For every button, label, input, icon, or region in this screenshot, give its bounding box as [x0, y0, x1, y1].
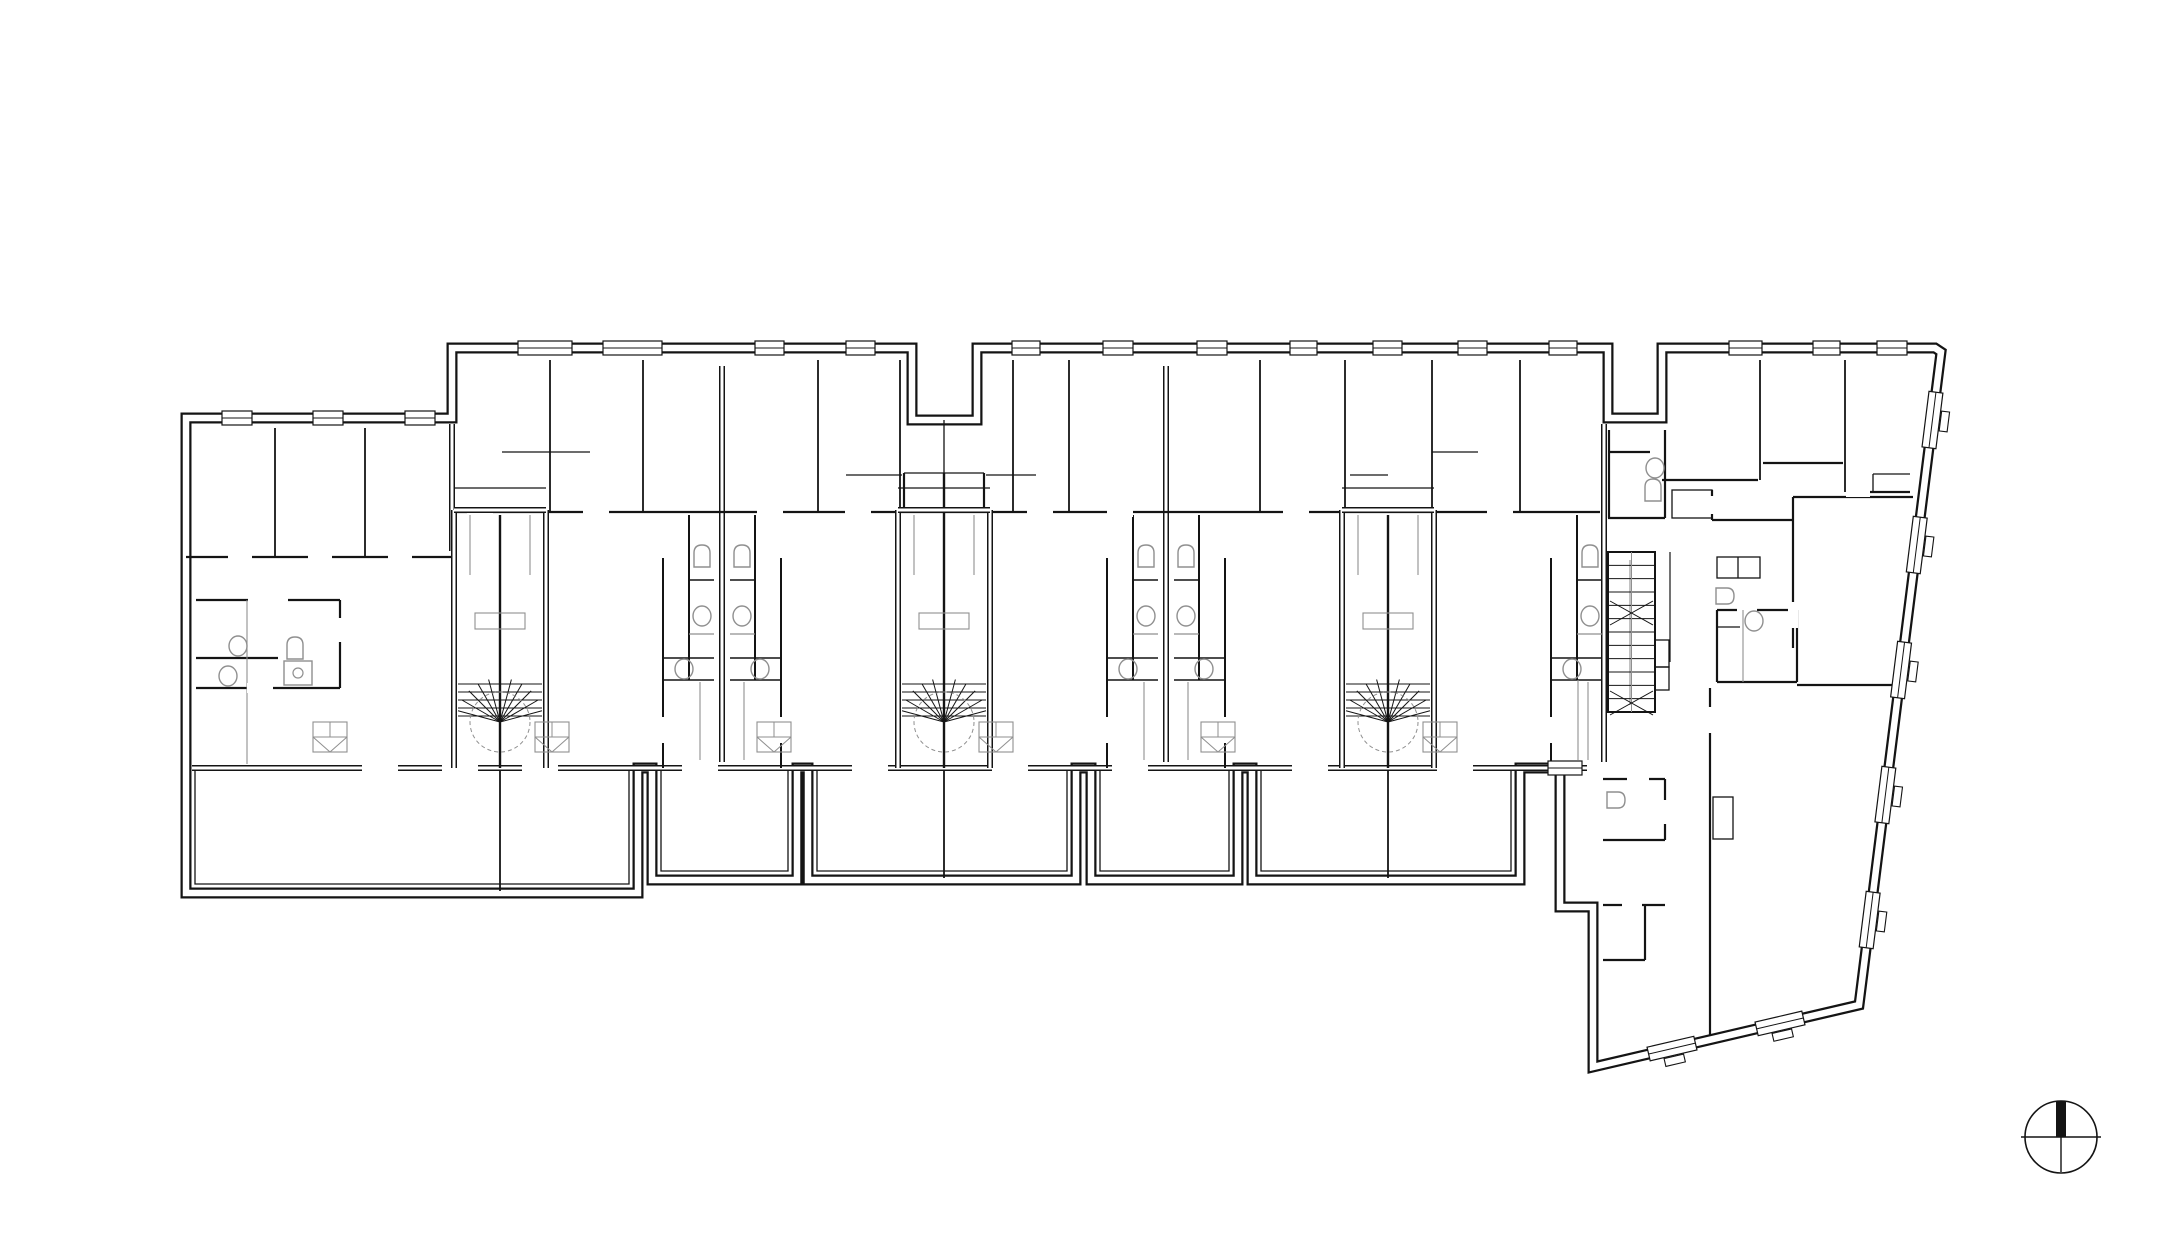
bath-clusters [663, 515, 1602, 768]
windows [222, 341, 1952, 1070]
party-walls [500, 473, 1388, 768]
floor-plan-drawing [0, 0, 2182, 1260]
floor-plan-canvas [0, 0, 2182, 1260]
north-compass-icon [2021, 1101, 2101, 1173]
interior-walls [186, 430, 1913, 1035]
terraces [195, 768, 1511, 891]
left-block-bath [219, 636, 312, 686]
